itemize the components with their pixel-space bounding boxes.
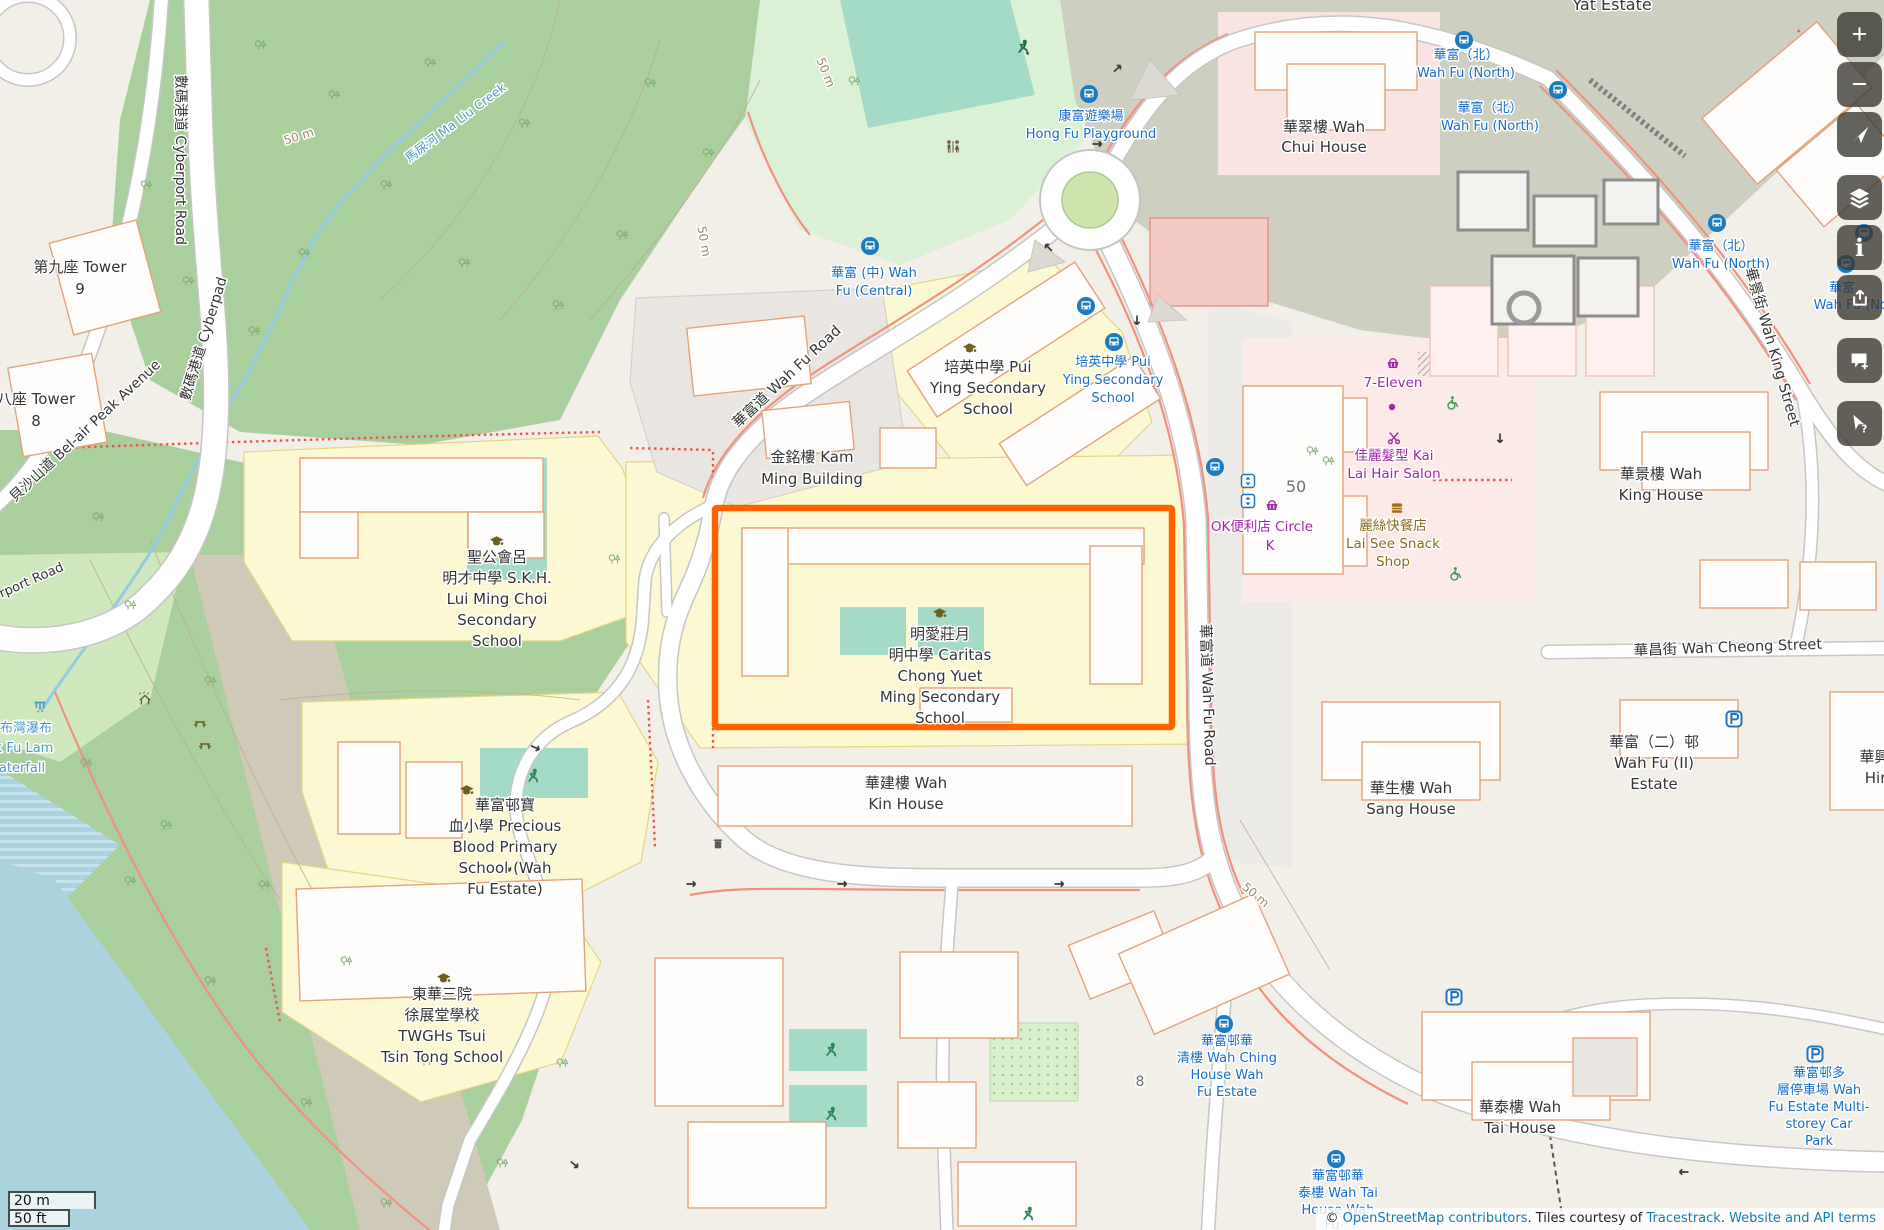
parking-icon bbox=[1808, 1047, 1823, 1062]
map-label: 50 m bbox=[694, 225, 713, 258]
map-label: 康富遊樂場 bbox=[1058, 108, 1123, 124]
map-label: 八座 Tower bbox=[0, 390, 76, 408]
map-label: House Wah bbox=[1190, 1068, 1263, 1083]
locate-arrow-icon bbox=[1849, 124, 1871, 146]
map-label: 數碼港道 Cyberport Road bbox=[172, 75, 188, 245]
map-label: 培英中學 Pui bbox=[944, 358, 1031, 376]
map-label: Lai Hair Salon bbox=[1347, 466, 1440, 482]
locate-button[interactable] bbox=[1837, 112, 1882, 157]
bus-icon bbox=[1206, 458, 1224, 476]
map-label: OK便利店 Circle bbox=[1211, 519, 1313, 535]
osm-contributors-link[interactable]: OpenStreetMap contributors bbox=[1343, 1211, 1528, 1226]
map-label: Lui Ming Choi bbox=[447, 590, 548, 608]
query-button[interactable]: ? bbox=[1837, 401, 1882, 446]
map-label: 8 bbox=[31, 412, 41, 430]
map-label: 華翠樓 Wah bbox=[1283, 118, 1365, 136]
map-label: TWGHs Tsui bbox=[397, 1027, 486, 1045]
share-icon bbox=[1850, 288, 1870, 308]
map-label: 聖公會呂 bbox=[467, 548, 527, 566]
legend-icon: i bbox=[1855, 236, 1864, 260]
map-label: 華富 (中) Wah bbox=[831, 265, 917, 281]
map-label: 華建樓 Wah bbox=[865, 774, 947, 792]
map-label: 泰樓 Wah Tai bbox=[1298, 1186, 1378, 1201]
map-label: 華富（北） bbox=[1688, 238, 1753, 254]
map-label: 華富邨多 bbox=[1793, 1065, 1845, 1081]
map-label: Hing bbox=[1865, 769, 1884, 787]
elevator-icon bbox=[1242, 475, 1255, 488]
map-label: Fu (Central) bbox=[836, 284, 913, 299]
map-label: Secondary bbox=[457, 611, 537, 629]
map-page: Yat Estate華翠樓 WahChui House第九座 Tower9八座 … bbox=[0, 0, 1884, 1230]
map-label: 華生樓 Wah bbox=[1370, 779, 1452, 797]
map-label: 金銘樓 Kam bbox=[770, 448, 853, 466]
map-label: 血小學 Precious bbox=[449, 817, 562, 835]
map-label: 麗絲快餐店 bbox=[1359, 518, 1427, 534]
note-button[interactable] bbox=[1837, 338, 1882, 383]
map-label: Chui House bbox=[1281, 138, 1366, 156]
map-label: 明愛莊月 bbox=[910, 625, 970, 643]
zoom-out-button[interactable]: − bbox=[1837, 62, 1882, 107]
map-label: School bbox=[915, 709, 965, 727]
map-label: Blood Primary bbox=[452, 838, 557, 856]
map-label: Wah Fu (North) bbox=[1441, 119, 1539, 134]
dot-icon bbox=[1389, 404, 1395, 410]
scale-imperial: 50 ft bbox=[8, 1209, 70, 1227]
map-label: Shop bbox=[1376, 554, 1410, 570]
scale-bar: 20 m 50 ft bbox=[8, 1191, 96, 1227]
map-label: 培英中學 Pui bbox=[1075, 354, 1151, 370]
bus-icon bbox=[1105, 333, 1123, 351]
map-label: Tai House bbox=[1483, 1119, 1556, 1137]
map-label: 華富邨寶 bbox=[475, 796, 535, 814]
map-label: 華景樓 Wah bbox=[1620, 465, 1702, 483]
zoom-out-icon: − bbox=[1852, 71, 1868, 98]
bus-icon bbox=[1327, 1150, 1345, 1168]
burger-icon bbox=[1392, 503, 1402, 512]
map-label: School bbox=[472, 632, 522, 650]
map-label: 華泰樓 Wah bbox=[1479, 1098, 1561, 1116]
map-label: Sang House bbox=[1366, 800, 1456, 818]
map-label: Fu Estate bbox=[1197, 1085, 1257, 1100]
bus-icon bbox=[1708, 214, 1726, 232]
zoom-in-icon: + bbox=[1852, 21, 1868, 48]
trash-icon bbox=[714, 839, 722, 848]
map-label: 華富邨華 bbox=[1201, 1033, 1253, 1049]
map-label: 明才中學 S.K.H. bbox=[442, 569, 551, 587]
oneway-arrow-icon bbox=[687, 881, 696, 886]
map-label: 布灣瀑布 bbox=[0, 721, 52, 736]
map-label: Kin House bbox=[868, 795, 943, 813]
bus-icon bbox=[1215, 1015, 1233, 1033]
zoom-in-button[interactable]: + bbox=[1837, 12, 1882, 57]
terms-link[interactable]: Website and API terms bbox=[1729, 1211, 1876, 1226]
parking-icon bbox=[1447, 990, 1462, 1005]
map-label: Fu Estate) bbox=[467, 880, 542, 898]
map-label: Wah Fu (II) bbox=[1614, 754, 1694, 772]
map-label: 華富邨華 bbox=[1312, 1168, 1364, 1184]
map-label: Lai See Snack bbox=[1346, 536, 1440, 552]
share-button[interactable] bbox=[1837, 275, 1882, 320]
map-label: King House bbox=[1619, 486, 1704, 504]
parking-icon bbox=[1727, 712, 1742, 727]
map-label: School bbox=[1091, 391, 1134, 406]
map-label: 第九座 Tower bbox=[33, 258, 127, 276]
map-label: storey Car bbox=[1785, 1117, 1853, 1132]
tracestrack-link[interactable]: Tracestrack bbox=[1646, 1211, 1720, 1226]
bus-icon bbox=[1549, 81, 1567, 99]
map-label: k Fu Lam bbox=[0, 741, 53, 756]
map-label: Hong Fu Playground bbox=[1026, 127, 1157, 142]
map-label: 9 bbox=[75, 280, 85, 298]
bus-icon bbox=[1455, 31, 1473, 49]
elevator-icon bbox=[1242, 495, 1255, 508]
attribution-separator: . bbox=[1721, 1211, 1729, 1226]
map-label: 清樓 Wah Ching bbox=[1177, 1051, 1277, 1066]
map-label: 層停車場 Wah bbox=[1777, 1082, 1861, 1098]
map-label: Wah Fu (North) bbox=[1417, 66, 1515, 81]
map-label: 華富（二）邨 bbox=[1609, 733, 1699, 751]
map-label: aterfall bbox=[0, 761, 45, 776]
map-label: School (Wah bbox=[459, 859, 552, 877]
map-label: 7-Eleven bbox=[1364, 375, 1423, 391]
svg-text:?: ? bbox=[1861, 423, 1867, 434]
map-label: 50 bbox=[1286, 477, 1306, 496]
map-label: 明中學 Caritas bbox=[889, 646, 992, 664]
map-label: Ming Secondary bbox=[880, 688, 1000, 706]
map-label: Wah Fu (North) bbox=[1672, 257, 1770, 272]
attribution-bar: © OpenStreetMap contributors. Tiles cour… bbox=[1316, 1208, 1884, 1230]
map-label: Fu Estate Multi- bbox=[1769, 1100, 1870, 1115]
add-note-icon bbox=[1849, 350, 1870, 371]
map-label: Ming Building bbox=[761, 470, 863, 488]
map-label: Chong Yuet bbox=[897, 667, 982, 685]
oneway-arrow-icon bbox=[569, 1159, 579, 1169]
map-label: School bbox=[963, 400, 1013, 418]
layers-icon bbox=[1848, 186, 1871, 209]
scale-metric: 20 m bbox=[8, 1191, 96, 1209]
map-label: K bbox=[1266, 538, 1276, 554]
map-label: 8 bbox=[1136, 1074, 1145, 1090]
bus-icon bbox=[1080, 85, 1098, 103]
map-label: Park bbox=[1805, 1134, 1834, 1149]
map-label: Estate bbox=[1630, 775, 1677, 793]
map-label: 東華三院 bbox=[412, 985, 472, 1003]
map-label: Ying Secondary bbox=[929, 379, 1046, 397]
layers-button[interactable] bbox=[1837, 175, 1882, 220]
map-label: Yat Estate bbox=[1571, 0, 1651, 14]
bus-icon bbox=[1077, 297, 1095, 315]
map-label: Ying Secondary bbox=[1062, 373, 1164, 388]
map-label: 佳麗髮型 Kai bbox=[1355, 448, 1434, 464]
attribution-text: . Tiles courtesy of bbox=[1528, 1211, 1647, 1226]
map-label: Tsin Tong School bbox=[380, 1048, 503, 1066]
map-label: 華富（北） bbox=[1457, 100, 1522, 116]
map-label: 華富（北） bbox=[1433, 47, 1498, 63]
map-canvas[interactable]: Yat Estate華翠樓 WahChui House第九座 Tower9八座 … bbox=[0, 0, 1884, 1230]
oneway-arrow-icon bbox=[1680, 1169, 1689, 1174]
bus-icon bbox=[861, 237, 879, 255]
map-label: 華興樓 bbox=[1859, 748, 1884, 766]
map-label: 徐展堂學校 bbox=[404, 1006, 479, 1024]
copyright-symbol: © bbox=[1326, 1211, 1343, 1226]
map-controls: +−i? bbox=[1837, 12, 1882, 451]
query-cursor-icon: ? bbox=[1849, 413, 1870, 434]
legend-button[interactable]: i bbox=[1837, 225, 1882, 270]
